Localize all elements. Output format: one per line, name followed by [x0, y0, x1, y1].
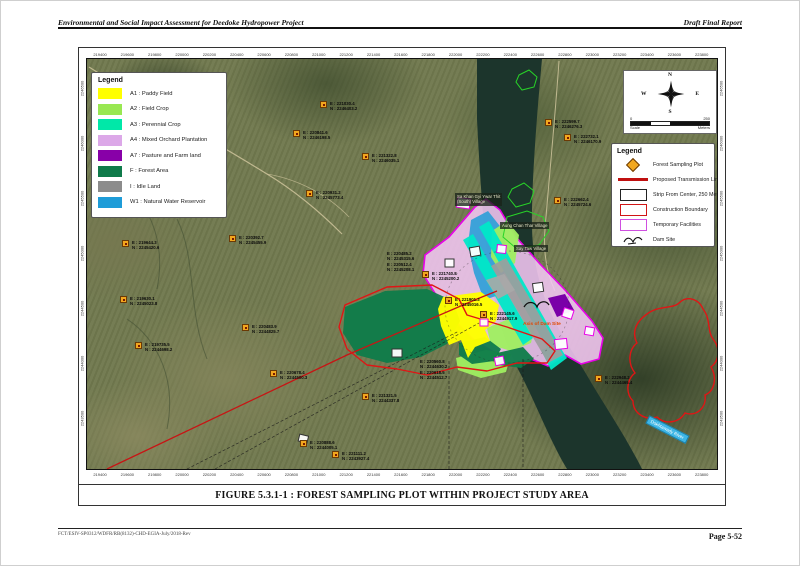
grid-coordinate-label: 222200 [476, 52, 489, 57]
grid-coordinate-label: 220000 [175, 472, 188, 477]
coordinate-text-block: E : 220485.2N : 2245315.6E : 220512.4N :… [387, 251, 414, 272]
grid-coordinate-label: 220800 [285, 472, 298, 477]
grid-coordinate-label: 223800 [695, 52, 708, 57]
grid-coordinate-label: 220400 [230, 472, 243, 477]
plot-coordinate-label: E : 221030.4N : 2246403.2 [330, 101, 357, 111]
feature-symbol [617, 189, 649, 201]
grid-coordinate-label: 221000 [312, 472, 325, 477]
legend-feature-label: Temporary Facilities [653, 222, 701, 228]
village-label: Sa Khan Gyi Ywar Thit(South) Village [455, 193, 502, 206]
plot-coordinate-label: E : 221111.2N : 2243927.4 [342, 451, 369, 461]
grid-coordinate-label: 222800 [558, 52, 571, 57]
header-title: Environmental and Social Impact Assessme… [58, 18, 304, 27]
village-label: Aung Chan Thar Village [500, 222, 549, 229]
landuse-swatch [98, 104, 122, 115]
village-label: Say Taw Village [514, 245, 548, 252]
grid-coordinate-label: 222000 [449, 472, 462, 477]
transmission-line-icon [618, 178, 648, 181]
compass-east-label: E [695, 91, 699, 97]
grid-coordinate-label: 222600 [531, 52, 544, 57]
figure-caption: FIGURE 5.3.1-1 : FOREST SAMPLING PLOT WI… [79, 484, 725, 506]
legend-item-label: W1 : Natural Water Reservoir [130, 199, 205, 205]
dam-site-icon [623, 234, 643, 246]
header-report-status: Draft Final Report [684, 18, 742, 27]
construction-boundary-east [628, 299, 717, 422]
forest-plot-marker: E : 221030.4N : 2246403.2 [320, 101, 327, 108]
legend-feature-label: Proposed Transmission Line [653, 177, 718, 183]
grid-coordinate-label: 220800 [285, 52, 298, 57]
plot-coordinate-label: E : 220841.6N : 2246198.5 [303, 130, 330, 140]
grid-coordinate-label: 219800 [148, 52, 161, 57]
forest-plot-marker: E : 221901.3N : 2245016.5 [445, 297, 452, 304]
report-page: Environmental and Social Impact Assessme… [0, 0, 800, 566]
legend-feature-3: Construction Boundary [617, 204, 709, 215]
landuse-swatch [98, 88, 122, 99]
page-header: Environmental and Social Impact Assessme… [58, 14, 742, 29]
grid-coordinate-label: 2245500 [719, 189, 724, 209]
page-footer: FCT/ESIV-SP0312/WDFR/RB(8132)-CHD-EGIA-J… [58, 528, 742, 541]
plot-coordinate-label: E : 220931.2N : 2245773.4 [316, 190, 343, 200]
plot-marker-icon [626, 157, 640, 171]
grid-labels-bottom: 2194002196002198002200002202002204002206… [86, 470, 716, 484]
forest-plot-marker: E : 221740.8N : 2245200.2 [422, 271, 429, 278]
grid-coordinate-label: 219600 [121, 52, 134, 57]
legend-features-items: Forest Sampling PlotProposed Transmissio… [617, 159, 709, 245]
feature-symbol [617, 178, 649, 181]
feature-symbol [617, 204, 649, 216]
plot-coordinate-label: E : 219735.5N : 2244698.2 [145, 342, 172, 352]
feature-symbol [617, 234, 649, 246]
compass-south-label: S [624, 109, 716, 115]
dam-axis-label: Axis of Dam Site [523, 322, 561, 327]
plot-coordinate-label: E : 222662.4N : 2245724.6 [564, 197, 591, 207]
grid-coordinate-label: 222600 [531, 472, 544, 477]
plot-coordinate-label: E : 222732.1N : 2246170.9 [574, 134, 601, 144]
forest-plot-marker: E : 220841.6N : 2246198.5 [293, 130, 300, 137]
grid-coordinate-label: 223000 [586, 52, 599, 57]
forest-plot-marker: E : 221111.2N : 2243927.4 [332, 451, 339, 458]
legend-feature-5: Dam Site [617, 234, 709, 245]
compass-north-label: N [624, 72, 716, 78]
construction-rect-icon [620, 204, 647, 216]
feature-symbol [617, 160, 649, 170]
grid-coordinate-label: 2246500 [80, 79, 85, 99]
landuse-swatch [98, 150, 122, 161]
legend-features: Legend Forest Sampling PlotProposed Tran… [611, 143, 715, 247]
grid-coordinate-label: 2245000 [80, 244, 85, 264]
grid-coordinate-label: 2244000 [719, 354, 724, 374]
grid-coordinate-label: 219400 [93, 472, 106, 477]
grid-coordinate-label: 221800 [422, 472, 435, 477]
legend-item-label: A2 : Field Crop [130, 106, 169, 112]
grid-coordinate-label: 222000 [449, 52, 462, 57]
forest-plot-marker: E : 221321.5N : 2244337.8 [362, 393, 369, 400]
temporary-rect-icon [620, 219, 647, 231]
grid-coordinate-label: 221600 [394, 472, 407, 477]
legend-item-label: I : Idle Land [130, 184, 160, 190]
grid-coordinate-label: 222400 [504, 52, 517, 57]
plot-coordinate-label: E : 221322.8N : 2246035.1 [372, 153, 399, 163]
grid-coordinate-label: 2245000 [719, 244, 724, 264]
grid-coordinate-label: 222400 [504, 472, 517, 477]
legend-item-W1: W1 : Natural Water Reservoir [98, 197, 220, 208]
plot-coordinate-label: E : 222599.7N : 2246276.3 [555, 119, 582, 129]
plot-coordinate-label: E : 220888.6N : 2244005.1 [310, 440, 337, 450]
legend-title: Legend [98, 77, 220, 84]
legend-item-label: F : Forest Area [130, 168, 168, 174]
landuse-swatch [98, 166, 122, 177]
scale-label-left: Scale [630, 125, 640, 130]
coordinate-text-block: E : 220560.8N : 2244630.2E : 220618.5N :… [420, 359, 447, 380]
plot-coordinate-label: E : 219644.3N : 2245420.6 [132, 240, 159, 250]
plot-coordinate-label: E : 221740.8N : 2245200.2 [432, 271, 459, 281]
grid-labels-left: 2246500224600022455002245000224450022440… [79, 58, 86, 470]
grid-coordinate-label: 223600 [668, 52, 681, 57]
forest-plot-marker: E : 221322.8N : 2246035.1 [362, 153, 369, 160]
plot-coordinate-label: E : 220483.9N : 2244825.7 [252, 324, 279, 334]
grid-coordinate-label: 221000 [312, 52, 325, 57]
grid-coordinate-label: 221200 [339, 52, 352, 57]
forest-plot-marker: E : 219735.5N : 2244698.2 [135, 342, 142, 349]
grid-labels-top: 2194002196002198002200002202002204002206… [86, 48, 716, 58]
legend-title: Legend [617, 148, 709, 155]
grid-coordinate-label: 2246000 [80, 134, 85, 154]
legend-item-I: I : Idle Land [98, 181, 220, 192]
compass-west-label: W [641, 91, 647, 97]
grid-coordinate-label: 223400 [640, 472, 653, 477]
legend-item-label: A7 : Pasture and Farm land [130, 153, 201, 159]
landuse-swatch [98, 135, 122, 146]
grid-coordinate-label: 2245500 [80, 189, 85, 209]
legend-landuse-items: A1 : Paddy FieldA2 : Field CropA3 : Pere… [98, 88, 220, 208]
grid-coordinate-label: 222800 [558, 472, 571, 477]
legend-landuse: Legend A1 : Paddy FieldA2 : Field CropA3… [91, 72, 227, 218]
legend-item-label: A4 : Mixed Orchard Plantation [130, 137, 207, 143]
grid-coordinate-label: 220000 [175, 52, 188, 57]
forest-plot-marker: E : 222599.7N : 2246276.3 [545, 119, 552, 126]
scale-bar: 0 250 Scale Meters [630, 116, 710, 130]
legend-item-A3: A3 : Perennial Crop [98, 119, 220, 130]
scale-label-right: Meters [698, 125, 710, 130]
compass-box: N S W E 0 250 [623, 70, 717, 134]
feature-symbol [617, 219, 649, 231]
grid-coordinate-label: 221200 [339, 472, 352, 477]
plot-coordinate-label: E : 219630.1N : 2245023.8 [130, 296, 157, 306]
plot-coordinate-label: E : 222948.2N : 2244465.4 [605, 375, 632, 385]
grid-coordinate-label: 221600 [394, 52, 407, 57]
grid-coordinate-label: 223800 [695, 472, 708, 477]
landuse-swatch [98, 181, 122, 192]
map-canvas: Legend A1 : Paddy FieldA2 : Field CropA3… [86, 58, 718, 470]
legend-feature-0: Forest Sampling Plot [617, 159, 709, 170]
plot-coordinate-label: E : 220392.7N : 2245455.9 [239, 235, 266, 245]
legend-feature-label: Forest Sampling Plot [653, 162, 703, 168]
forest-plot-marker: E : 220931.2N : 2245773.4 [306, 190, 313, 197]
legend-item-A4: A4 : Mixed Orchard Plantation [98, 135, 220, 146]
forest-plot-marker: E : 222662.4N : 2245724.6 [554, 197, 561, 204]
grid-coordinate-label: 221800 [422, 52, 435, 57]
legend-item-F: F : Forest Area [98, 166, 220, 177]
strip-rect-icon [620, 189, 647, 201]
grid-coordinate-label: 2246500 [719, 79, 724, 99]
forest-plot-marker: E : 220483.9N : 2244825.7 [242, 324, 249, 331]
forest-plot-marker: E : 222145.6N : 2244917.9 [480, 311, 487, 318]
legend-feature-4: Temporary Facilities [617, 219, 709, 230]
plot-coordinate-label: E : 222145.6N : 2244917.9 [490, 311, 517, 321]
plot-coordinate-label: E : 221901.3N : 2245016.5 [455, 297, 482, 307]
grid-coordinate-label: 221400 [367, 472, 380, 477]
grid-coordinate-label: 223600 [668, 472, 681, 477]
landuse-swatch [98, 119, 122, 130]
grid-coordinate-label: 2244500 [80, 299, 85, 319]
grid-coordinate-label: 220600 [257, 52, 270, 57]
grid-coordinate-label: 221400 [367, 52, 380, 57]
grid-coordinate-label: 220200 [203, 472, 216, 477]
grid-coordinate-label: 2244500 [719, 299, 724, 319]
legend-feature-label: Dam Site [653, 237, 675, 243]
forest-plot-marker: E : 220392.7N : 2245455.9 [229, 235, 236, 242]
grid-coordinate-label: 219400 [93, 52, 106, 57]
grid-labels-right: 2246500224600022455002245000224450022440… [718, 58, 725, 470]
grid-coordinate-label: 219600 [121, 472, 134, 477]
grid-coordinate-label: 222200 [476, 472, 489, 477]
grid-coordinate-label: 223200 [613, 52, 626, 57]
grid-coordinate-label: 2244000 [80, 354, 85, 374]
compass-rose-icon [657, 80, 685, 108]
legend-feature-label: Construction Boundary [653, 207, 708, 213]
legend-item-label: A3 : Perennial Crop [130, 122, 181, 128]
legend-item-A2: A2 : Field Crop [98, 104, 220, 115]
grid-coordinate-label: 2243500 [80, 409, 85, 429]
legend-feature-2: Strip From Center, 250 Meters [617, 189, 709, 200]
grid-coordinate-label: 220200 [203, 52, 216, 57]
legend-feature-label: Strip From Center, 250 Meters [653, 192, 718, 198]
forest-plot-marker: E : 222732.1N : 2246170.9 [564, 134, 571, 141]
grid-coordinate-label: 219800 [148, 472, 161, 477]
road-east-bank [544, 61, 559, 291]
legend-feature-1: Proposed Transmission Line [617, 174, 709, 185]
forest-plot-marker: E : 219630.1N : 2245023.8 [120, 296, 127, 303]
grid-coordinate-label: 223400 [640, 52, 653, 57]
grid-coordinate-label: 2246000 [719, 134, 724, 154]
landuse-swatch [98, 197, 122, 208]
footer-page-number: Page 5-52 [709, 532, 742, 541]
forest-plot-marker: E : 222948.2N : 2244465.4 [595, 375, 602, 382]
legend-item-A1: A1 : Paddy Field [98, 88, 220, 99]
grid-coordinate-label: 2243500 [719, 409, 724, 429]
grid-coordinate-label: 223000 [586, 472, 599, 477]
grid-coordinate-label: 220600 [257, 472, 270, 477]
forest-plot-marker: E : 220888.6N : 2244005.1 [300, 440, 307, 447]
figure-frame: 2194002196002198002200002202002204002206… [78, 47, 726, 506]
legend-item-A7: A7 : Pasture and Farm land [98, 150, 220, 161]
plot-coordinate-label: E : 221321.5N : 2244337.8 [372, 393, 399, 403]
grid-coordinate-label: 220400 [230, 52, 243, 57]
grid-coordinate-label: 223200 [613, 472, 626, 477]
plot-coordinate-label: E : 220678.4N : 2244500.3 [280, 370, 307, 380]
footer-document-code: FCT/ESIV-SP0312/WDFR/RB(8132)-CHD-EGIA-J… [58, 532, 191, 541]
forest-plot-marker: E : 220678.4N : 2244500.3 [270, 370, 277, 377]
legend-item-label: A1 : Paddy Field [130, 91, 173, 97]
forest-plot-marker: E : 219644.3N : 2245420.6 [122, 240, 129, 247]
